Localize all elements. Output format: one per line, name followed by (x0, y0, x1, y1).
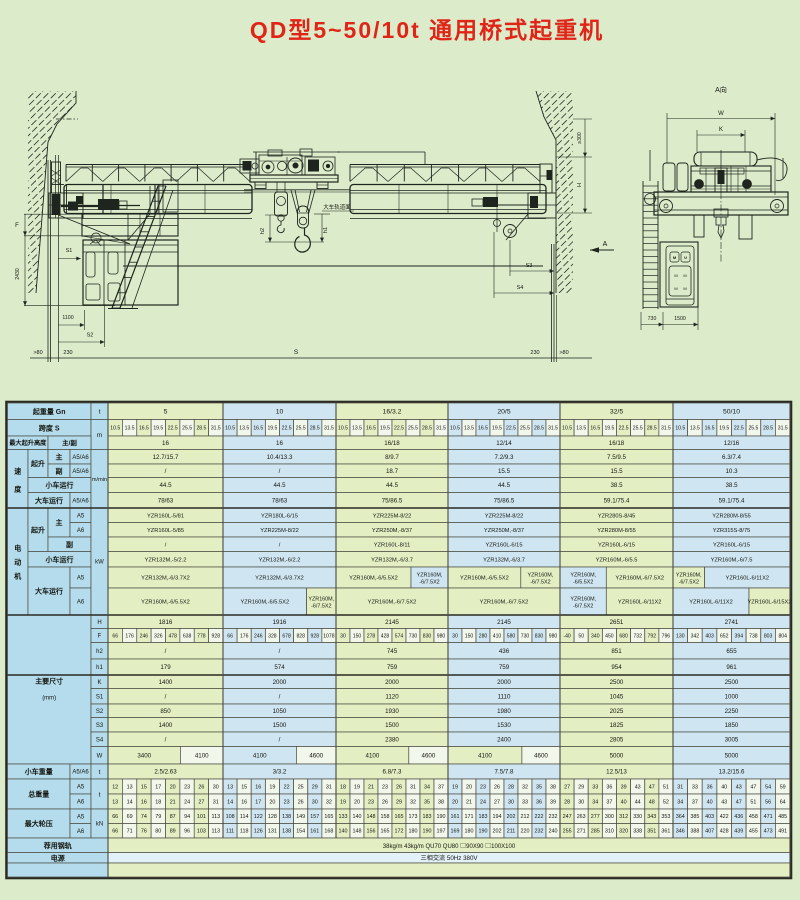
svg-text:YZR132M,-6/3.7X2: YZR132M,-6/3.7X2 (141, 576, 190, 582)
svg-text:44.5: 44.5 (159, 482, 172, 489)
svg-text:2430: 2430 (15, 268, 21, 280)
svg-text:>80: >80 (559, 350, 568, 356)
svg-text:580: 580 (507, 633, 516, 639)
svg-text:133: 133 (339, 814, 348, 820)
svg-text:149: 149 (296, 814, 305, 820)
svg-text:792: 792 (648, 633, 657, 639)
svg-text:电: 电 (14, 544, 21, 554)
svg-text:759: 759 (499, 664, 510, 671)
svg-text:730: 730 (409, 633, 418, 639)
svg-text:156: 156 (367, 829, 376, 835)
svg-text:247: 247 (563, 814, 572, 820)
svg-text:47: 47 (649, 784, 655, 790)
svg-text:759: 759 (387, 664, 398, 671)
svg-text:148: 148 (353, 829, 362, 835)
svg-text:954: 954 (611, 664, 622, 671)
svg-text:113: 113 (212, 814, 221, 820)
svg-text:678: 678 (282, 633, 291, 639)
svg-text:YZR160L-6/11X2: YZR160L-6/11X2 (726, 576, 770, 582)
svg-text:232: 232 (535, 829, 544, 835)
svg-text:13: 13 (227, 784, 233, 790)
svg-text:18: 18 (340, 784, 346, 790)
svg-text:最大轮压: 最大轮压 (25, 819, 53, 829)
svg-text:2145: 2145 (385, 619, 399, 626)
svg-text:YZR160M,: YZR160M, (676, 573, 702, 579)
svg-text:346: 346 (676, 829, 685, 835)
svg-text:928: 928 (311, 633, 320, 639)
svg-text:263: 263 (577, 814, 586, 820)
svg-text:21: 21 (368, 784, 374, 790)
svg-text:138: 138 (282, 814, 291, 820)
svg-text:31: 31 (213, 799, 219, 805)
svg-text:A向: A向 (715, 85, 727, 95)
svg-text:353: 353 (661, 814, 670, 820)
svg-text:183: 183 (479, 814, 488, 820)
svg-text:22.5: 22.5 (506, 426, 516, 432)
svg-text:15: 15 (141, 784, 147, 790)
svg-text:680: 680 (619, 633, 628, 639)
svg-text:15.5: 15.5 (498, 468, 511, 475)
svg-text:171: 171 (465, 814, 474, 820)
svg-text:38: 38 (550, 784, 556, 790)
svg-text:30: 30 (452, 633, 458, 639)
svg-text:212: 212 (521, 814, 530, 820)
svg-text:22.5: 22.5 (734, 426, 744, 432)
svg-text:25.5: 25.5 (520, 426, 530, 432)
svg-text:19.5: 19.5 (267, 426, 277, 432)
svg-text:10: 10 (276, 409, 284, 416)
svg-text:YZR250M,-8/37: YZR250M,-8/37 (372, 528, 412, 534)
svg-text:kW: kW (95, 560, 104, 566)
svg-text:22.5: 22.5 (282, 426, 292, 432)
svg-text:YZR280S-8/45: YZR280S-8/45 (598, 513, 636, 519)
svg-text:-6/7.5X2: -6/7.5X2 (311, 604, 331, 610)
svg-text:13.5: 13.5 (576, 426, 586, 432)
svg-text:YZR132M,-6/3.7: YZR132M,-6/3.7 (371, 557, 413, 563)
svg-text:1120: 1120 (385, 694, 399, 701)
svg-text:103: 103 (197, 829, 206, 835)
svg-text:32/5: 32/5 (610, 409, 623, 416)
svg-text:34: 34 (677, 799, 683, 805)
svg-text:2500: 2500 (725, 679, 739, 686)
svg-text:YZR160L-6/11X2: YZR160L-6/11X2 (689, 600, 733, 606)
svg-text:148: 148 (367, 814, 376, 820)
svg-text:/: / (165, 648, 167, 655)
svg-text:458: 458 (749, 814, 758, 820)
svg-text:75/86.5: 75/86.5 (494, 498, 515, 505)
svg-text:574: 574 (395, 633, 404, 639)
svg-text:330: 330 (633, 814, 642, 820)
svg-text:10.3: 10.3 (725, 468, 738, 475)
svg-text:928: 928 (212, 633, 221, 639)
svg-text:78/63: 78/63 (272, 498, 288, 505)
svg-text:副: 副 (66, 540, 73, 550)
svg-text:H: H (97, 620, 101, 626)
svg-text:1980: 1980 (497, 708, 511, 715)
svg-text:-6/7.5X2: -6/7.5X2 (679, 580, 699, 586)
svg-text:h1: h1 (323, 227, 329, 233)
svg-text:t: t (99, 409, 101, 416)
svg-text:47: 47 (736, 799, 742, 805)
svg-text:50: 50 (578, 633, 584, 639)
svg-text:13: 13 (112, 799, 118, 805)
svg-text:638: 638 (183, 633, 192, 639)
svg-text:28.5: 28.5 (647, 426, 657, 432)
svg-text:23: 23 (480, 784, 486, 790)
svg-text:66: 66 (112, 829, 118, 835)
svg-text:19.5: 19.5 (719, 426, 729, 432)
svg-text:10.5: 10.5 (110, 426, 120, 432)
svg-text:1000: 1000 (725, 694, 739, 701)
svg-text:M: M (683, 286, 686, 291)
svg-text:13.5: 13.5 (352, 426, 362, 432)
svg-text:A5/A6: A5/A6 (72, 770, 89, 776)
svg-text:YZR160M,-6/7.5X2: YZR160M,-6/7.5X2 (615, 576, 664, 582)
svg-text:491: 491 (778, 829, 787, 835)
svg-text:-6/7.5X2: -6/7.5X2 (530, 580, 550, 586)
svg-text:114: 114 (240, 814, 249, 820)
svg-text:31.5: 31.5 (778, 426, 788, 432)
svg-text:422: 422 (720, 814, 729, 820)
svg-text:38: 38 (438, 799, 444, 805)
svg-text:YZR132M,-6/2.2: YZR132M,-6/2.2 (259, 557, 301, 563)
svg-text:16.5: 16.5 (478, 426, 488, 432)
svg-text:大车运行: 大车运行 (35, 496, 63, 506)
svg-text:30: 30 (578, 799, 584, 805)
svg-text:194: 194 (493, 814, 502, 820)
svg-text:851: 851 (611, 648, 622, 655)
svg-text:m: m (97, 432, 102, 439)
svg-text:20: 20 (354, 799, 360, 805)
svg-text:28.5: 28.5 (196, 426, 206, 432)
svg-text:44: 44 (635, 799, 641, 805)
svg-text:2000: 2000 (385, 679, 399, 686)
svg-text:16.5: 16.5 (705, 426, 715, 432)
svg-text:30: 30 (312, 799, 318, 805)
svg-text:131: 131 (268, 829, 277, 835)
svg-text:度: 度 (14, 485, 22, 495)
svg-text:-6/7.5X2: -6/7.5X2 (573, 604, 593, 610)
svg-text:12.5/13: 12.5/13 (606, 769, 627, 776)
svg-text:小车运行: 小车运行 (45, 555, 74, 565)
svg-text:113: 113 (212, 829, 221, 835)
svg-text:1530: 1530 (497, 722, 511, 729)
svg-text:A5/A6: A5/A6 (72, 469, 89, 475)
svg-text:25: 25 (298, 784, 304, 790)
svg-text:机: 机 (14, 572, 21, 582)
svg-text:小车运行: 小车运行 (45, 481, 74, 491)
svg-text:43: 43 (721, 799, 727, 805)
svg-text:19.5: 19.5 (492, 426, 502, 432)
svg-text:31: 31 (410, 784, 416, 790)
svg-text:3/3.2: 3/3.2 (273, 769, 287, 776)
svg-text:4600: 4600 (309, 753, 323, 760)
svg-text:S4: S4 (517, 285, 524, 291)
svg-text:主/副: 主/副 (62, 437, 77, 447)
svg-text:12.7/15.7: 12.7/15.7 (153, 454, 179, 461)
svg-text:51: 51 (750, 799, 756, 805)
svg-text:YZR160M,-6/5.5X2: YZR160M,-6/5.5X2 (460, 576, 509, 582)
svg-text:33: 33 (592, 784, 598, 790)
svg-text:27: 27 (494, 799, 500, 805)
svg-text:19.5: 19.5 (380, 426, 390, 432)
svg-text:18: 18 (155, 799, 161, 805)
svg-text:13: 13 (127, 784, 133, 790)
svg-text:21: 21 (170, 799, 176, 805)
svg-text:478: 478 (168, 633, 177, 639)
svg-text:14: 14 (127, 799, 133, 805)
svg-text:1110: 1110 (498, 694, 511, 701)
svg-text:31.5: 31.5 (211, 426, 221, 432)
svg-text:16/18: 16/18 (384, 440, 400, 447)
svg-text:t: t (99, 791, 101, 798)
svg-text:165: 165 (324, 814, 333, 820)
svg-text:4100: 4100 (253, 753, 267, 760)
svg-text:YZR225M-8/22: YZR225M-8/22 (260, 528, 299, 534)
svg-text:YZR160M,: YZR160M, (570, 597, 596, 603)
svg-text:10.5: 10.5 (675, 426, 685, 432)
svg-text:180: 180 (465, 829, 474, 835)
svg-text:3005: 3005 (725, 737, 739, 744)
svg-text:m/min: m/min (92, 477, 107, 483)
svg-text:285: 285 (591, 829, 600, 835)
svg-text:最大起升高度: 最大起升高度 (9, 438, 47, 447)
svg-text:138: 138 (282, 829, 291, 835)
svg-text:796: 796 (662, 633, 671, 639)
svg-text:1825: 1825 (610, 722, 624, 729)
svg-text:32: 32 (410, 799, 416, 805)
svg-text:240: 240 (549, 829, 558, 835)
svg-text:S4: S4 (96, 737, 104, 743)
svg-text:328: 328 (268, 633, 277, 639)
svg-text:31: 31 (677, 784, 683, 790)
svg-text:59: 59 (780, 784, 786, 790)
svg-text:37: 37 (606, 799, 612, 805)
svg-text:87: 87 (170, 814, 176, 820)
svg-text:29: 29 (312, 784, 318, 790)
svg-text:320: 320 (619, 829, 628, 835)
svg-text:19: 19 (354, 784, 360, 790)
svg-text:≥300: ≥300 (576, 132, 583, 144)
svg-text:26: 26 (382, 799, 388, 805)
svg-text:16.5: 16.5 (366, 426, 376, 432)
svg-text:340: 340 (591, 633, 600, 639)
svg-text:12: 12 (112, 784, 118, 790)
svg-text:起升: 起升 (30, 459, 45, 469)
svg-text:31.5: 31.5 (324, 426, 334, 432)
svg-text:20/5: 20/5 (497, 409, 510, 416)
svg-text:10.5: 10.5 (450, 426, 460, 432)
svg-text:655: 655 (726, 648, 737, 655)
svg-text:150: 150 (353, 633, 362, 639)
svg-text:54: 54 (765, 784, 771, 790)
svg-text:43: 43 (736, 784, 742, 790)
svg-text:S: S (294, 349, 299, 356)
svg-text:403: 403 (705, 633, 714, 639)
svg-text:12/16: 12/16 (724, 440, 740, 447)
svg-text:速: 速 (14, 467, 21, 477)
svg-text:35: 35 (424, 799, 430, 805)
svg-text:YZR280M-8/55: YZR280M-8/55 (712, 513, 751, 519)
svg-text:A5/A6: A5/A6 (72, 455, 89, 461)
svg-text:255: 255 (563, 829, 572, 835)
svg-text:A6: A6 (77, 600, 85, 606)
svg-text:2145: 2145 (497, 619, 511, 626)
svg-text:33: 33 (692, 784, 698, 790)
svg-text:/: / (279, 468, 281, 475)
svg-text:16.5: 16.5 (139, 426, 149, 432)
svg-text:310: 310 (605, 829, 614, 835)
svg-text:YZR160L-6/15: YZR160L-6/15 (486, 542, 523, 548)
svg-text:2805: 2805 (610, 737, 624, 744)
svg-text:4100: 4100 (366, 753, 380, 760)
svg-text:起重量 Gn: 起重量 Gn (32, 407, 66, 417)
svg-text:主: 主 (56, 452, 63, 462)
svg-text:439: 439 (734, 829, 743, 835)
svg-text:电源: 电源 (51, 853, 65, 863)
svg-text:28.5: 28.5 (534, 426, 544, 432)
svg-text:338: 338 (633, 829, 642, 835)
svg-text:59.1/75.4: 59.1/75.4 (719, 498, 745, 505)
svg-text:246: 246 (254, 633, 263, 639)
svg-text:A5: A5 (77, 785, 85, 791)
svg-text:38.5: 38.5 (725, 482, 738, 489)
svg-text:122: 122 (254, 814, 263, 820)
svg-text:176: 176 (125, 633, 134, 639)
svg-text:364: 364 (676, 814, 685, 820)
svg-text:4600: 4600 (422, 753, 436, 760)
svg-text:22: 22 (284, 784, 290, 790)
svg-text:8/9.7: 8/9.7 (385, 454, 399, 461)
svg-text:165: 165 (395, 814, 404, 820)
svg-text:H: H (577, 183, 583, 187)
svg-text:主要尺寸: 主要尺寸 (35, 677, 63, 687)
svg-text:/: / (165, 468, 167, 475)
svg-text:157: 157 (310, 814, 319, 820)
svg-text:M: M (683, 273, 686, 278)
svg-text:22.5: 22.5 (619, 426, 629, 432)
svg-text:78/63: 78/63 (158, 498, 174, 505)
svg-text:F: F (98, 634, 102, 640)
svg-text:大车运行: 大车运行 (35, 587, 63, 597)
svg-text:38.5: 38.5 (610, 482, 623, 489)
svg-text:A5/A6: A5/A6 (72, 498, 89, 504)
svg-text:980: 980 (437, 633, 446, 639)
svg-text:410: 410 (493, 633, 502, 639)
svg-text:804: 804 (778, 633, 787, 639)
svg-text:YZR160L-6/15: YZR160L-6/15 (598, 542, 635, 548)
svg-text:YZR160L-5/81: YZR160L-5/81 (147, 513, 184, 519)
svg-text:16/18: 16/18 (609, 440, 625, 447)
svg-text:407: 407 (705, 829, 714, 835)
svg-text:S3: S3 (526, 263, 533, 269)
svg-text:40: 40 (621, 799, 627, 805)
svg-text:1400: 1400 (159, 679, 173, 686)
svg-text:1050: 1050 (273, 708, 287, 715)
svg-text:150: 150 (465, 633, 474, 639)
svg-text:16: 16 (162, 440, 169, 447)
svg-text:1400: 1400 (159, 722, 173, 729)
svg-text:428: 428 (381, 633, 390, 639)
svg-text:20: 20 (466, 784, 472, 790)
svg-text:小车重量: 小车重量 (24, 767, 53, 777)
svg-text:26: 26 (396, 784, 402, 790)
svg-text:1916: 1916 (273, 619, 287, 626)
svg-text:39: 39 (621, 784, 627, 790)
svg-text:2500: 2500 (610, 679, 624, 686)
svg-text:5000: 5000 (610, 753, 624, 760)
svg-text:-6/7.5X2: -6/7.5X2 (419, 580, 439, 586)
svg-text:YZR132M,-6/3.7X2: YZR132M,-6/3.7X2 (255, 576, 304, 582)
svg-text:16: 16 (241, 799, 247, 805)
svg-text:16: 16 (255, 784, 261, 790)
svg-text:h2: h2 (260, 228, 266, 234)
svg-text:76: 76 (141, 829, 147, 835)
svg-text:23: 23 (284, 799, 290, 805)
svg-text:27: 27 (564, 784, 570, 790)
svg-text:850: 850 (160, 708, 171, 715)
svg-text:52: 52 (663, 799, 669, 805)
svg-text:80: 80 (155, 829, 161, 835)
svg-text:74: 74 (141, 814, 147, 820)
svg-text:13.5: 13.5 (464, 426, 474, 432)
svg-text:M: M (674, 273, 677, 278)
svg-text:A5: A5 (77, 576, 85, 582)
svg-text:1100: 1100 (62, 315, 73, 321)
svg-text:75/86.5: 75/86.5 (382, 498, 403, 505)
svg-text:232: 232 (549, 814, 558, 820)
svg-text:732: 732 (633, 633, 642, 639)
svg-text:2380: 2380 (385, 737, 399, 744)
svg-text:48: 48 (649, 799, 655, 805)
svg-text:183: 183 (423, 814, 432, 820)
svg-text:YZR160M,: YZR160M, (417, 573, 443, 579)
svg-text:71: 71 (127, 829, 133, 835)
svg-text:2400: 2400 (497, 737, 511, 744)
svg-text:31: 31 (326, 784, 332, 790)
svg-text:1078: 1078 (323, 633, 334, 639)
svg-text:16.5: 16.5 (590, 426, 600, 432)
svg-text:197: 197 (437, 829, 446, 835)
svg-text:15.5: 15.5 (610, 468, 623, 475)
svg-text:23: 23 (184, 784, 190, 790)
svg-text:YZR160M,: YZR160M, (308, 597, 334, 603)
svg-text:t: t (99, 769, 101, 776)
svg-text:13.2/15.6: 13.2/15.6 (719, 769, 745, 776)
svg-text:25.5: 25.5 (296, 426, 306, 432)
svg-text:16/3.2: 16/3.2 (383, 409, 402, 416)
svg-text:652: 652 (720, 633, 729, 639)
svg-text:271: 271 (577, 829, 586, 835)
svg-text:50/10: 50/10 (723, 409, 740, 416)
svg-text:169: 169 (451, 829, 460, 835)
svg-text:2000: 2000 (273, 679, 287, 686)
svg-text:31.5: 31.5 (661, 426, 671, 432)
svg-text:342: 342 (691, 633, 700, 639)
svg-text:YZR160L-6/15: YZR160L-6/15 (713, 542, 750, 548)
svg-text:158: 158 (381, 814, 390, 820)
svg-text:YZR132M,-5/2.2: YZR132M,-5/2.2 (145, 557, 187, 563)
svg-text:19: 19 (269, 784, 275, 790)
svg-text:803: 803 (764, 633, 773, 639)
svg-text:436: 436 (734, 814, 743, 820)
svg-text:128: 128 (268, 814, 277, 820)
svg-text:361: 361 (661, 829, 670, 835)
svg-text:450: 450 (605, 633, 614, 639)
svg-text:YZR160M,-6/5.5X2: YZR160M,-6/5.5X2 (240, 600, 289, 606)
svg-text:30: 30 (213, 784, 219, 790)
svg-text:471: 471 (764, 814, 773, 820)
